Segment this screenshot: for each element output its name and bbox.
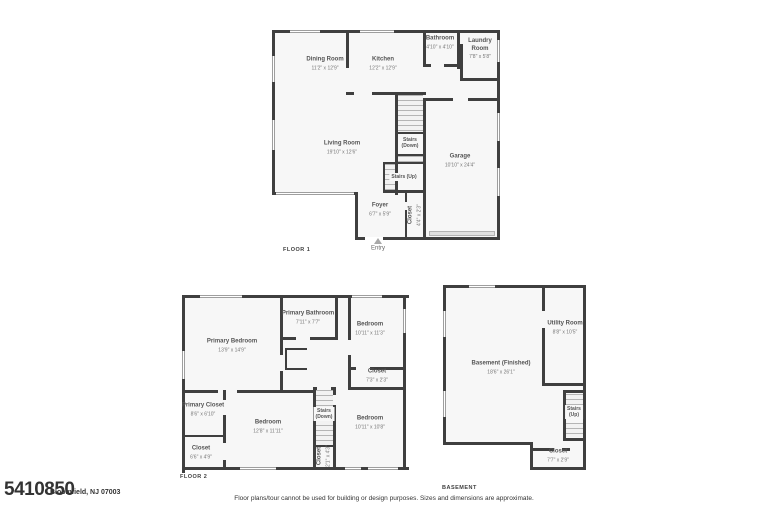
wall	[383, 162, 425, 164]
wall	[355, 192, 358, 240]
stair-treads	[398, 95, 423, 132]
room-name: Living Room	[324, 141, 360, 149]
room-label-dining: Dining Room 11'2" x 12'9"	[306, 57, 343, 72]
room-label-closet: Closet 4'4" x 2'3"	[408, 204, 423, 226]
wall	[348, 387, 406, 390]
window	[290, 30, 320, 33]
room-label-garage: Garage 10'10" x 24'4"	[445, 154, 475, 169]
room-name: Closet	[366, 369, 388, 377]
window	[403, 309, 406, 333]
stairs-up-label: Stairs (Up)	[565, 405, 583, 419]
wall	[223, 460, 226, 470]
room-dims: 6'7" x 5'9"	[369, 211, 391, 217]
room-name: Closet	[547, 449, 569, 457]
room-name: Primary Bedroom	[207, 339, 257, 347]
stairs-line: Stairs (Up)	[391, 174, 416, 180]
wall	[395, 154, 426, 156]
floor2-plan: Primary Bedroom 13'9" x 14'9" Primary Ba…	[180, 293, 408, 475]
wall	[563, 390, 586, 393]
room-name: Kitchen	[369, 57, 396, 65]
window	[272, 56, 275, 82]
wall	[348, 295, 351, 340]
room-dims: 4'4" x 2'3"	[416, 204, 422, 226]
room-dims: 10'11" x 10'8"	[355, 424, 385, 430]
basement-plan: Utility Room 8'8" x 10'5" Basement (Fini…	[441, 283, 591, 477]
window	[200, 295, 242, 298]
wall	[346, 92, 354, 95]
window	[345, 467, 361, 470]
basement-title: BASEMENT	[442, 485, 477, 491]
room-label-bedroom-right: Bedroom 10'11" x 10'8"	[355, 416, 385, 431]
wall	[383, 162, 385, 192]
room-name: Closet	[408, 204, 416, 226]
wall	[423, 98, 453, 101]
room-dims: 12'2" x 12'9"	[369, 65, 396, 71]
wall	[583, 285, 586, 470]
room-label-basement-finished: Basement (Finished) 18'6" x 26'1"	[471, 361, 530, 376]
window	[469, 285, 495, 288]
room-label-closet-basement: Closet 7'7" x 2'9"	[547, 449, 569, 464]
room-dims: 6'6" x 4'9"	[190, 454, 212, 460]
window	[272, 120, 275, 150]
wall	[443, 442, 533, 445]
window	[497, 168, 500, 196]
room-label-kitchen: Kitchen 12'2" x 12'9"	[369, 57, 396, 72]
room-dims: 7'7" x 2'9"	[547, 457, 569, 463]
wall	[443, 285, 446, 445]
floor1-plan: Dining Room 11'2" x 12'9" Kitchen 12'2" …	[270, 28, 500, 246]
room-name: Primary Bathroom	[282, 311, 334, 319]
wall	[460, 78, 500, 81]
window	[276, 192, 354, 195]
entry-arrow-icon	[374, 238, 382, 244]
room-name: Laundry Room	[466, 38, 494, 53]
disclaimer-text: Floor plans/tour cannot be used for buil…	[0, 495, 768, 502]
wall	[468, 98, 500, 101]
wall	[423, 64, 431, 67]
floorplan-page: Dining Room 11'2" x 12'9" Kitchen 12'2" …	[0, 0, 768, 512]
room-label-primary-bedroom: Primary Bedroom 13'9" x 14'9"	[207, 339, 257, 354]
room-dims: 18'6" x 26'1"	[471, 369, 530, 375]
room-name: Bedroom	[355, 416, 385, 424]
wall	[313, 387, 316, 470]
entry-label: Entry	[371, 245, 385, 253]
room-label-bedroom-mid: Bedroom 12'8" x 11'11"	[253, 420, 282, 435]
window	[368, 467, 398, 470]
room-label-foyer: Foyer 6'7" x 5'9"	[369, 203, 391, 218]
room-dims: 19'10" x 12'6"	[324, 149, 360, 155]
room-name: Foyer	[369, 203, 391, 211]
wall	[237, 390, 316, 393]
stair-treads	[566, 423, 583, 437]
room-dims: 10'11" x 11'3"	[355, 330, 384, 336]
wall	[346, 30, 349, 68]
floor2-title: FLOOR 2	[180, 474, 207, 480]
room-dims: 4'10" x 4'10"	[426, 44, 454, 50]
room-dims: 7'3" x 2'3"	[366, 377, 388, 383]
room-dims: 7'8" x 5'8"	[466, 54, 494, 60]
room-dims: 12'8" x 11'11"	[253, 428, 282, 434]
entry-text: Entry	[371, 245, 385, 253]
stairs-down-label: Stairs (Down)	[314, 407, 335, 421]
window	[443, 311, 446, 337]
wall	[423, 98, 426, 240]
wall	[223, 390, 226, 400]
wall	[223, 415, 226, 443]
room-label-living: Living Room 19'10" x 12'6"	[324, 141, 360, 156]
room-label-bathroom: Bathroom 4'10" x 4'10"	[426, 36, 454, 51]
wall	[285, 348, 307, 350]
window	[497, 113, 500, 141]
room-name: Bedroom	[355, 322, 384, 330]
garage-door	[429, 231, 495, 236]
room-name: Closet	[317, 445, 325, 467]
room-name: Basement (Finished)	[471, 361, 530, 369]
wall	[542, 383, 586, 386]
wall	[285, 348, 287, 370]
window	[240, 467, 276, 470]
wall	[310, 337, 338, 340]
room-dims: 2'1" x 4'3"	[325, 445, 331, 467]
room-name: Dining Room	[306, 57, 343, 65]
room-dims: 8'6" x 6'10"	[182, 411, 224, 417]
wall	[542, 328, 545, 386]
room-name: Utility Room	[547, 321, 582, 329]
stairs-line: (Down)	[402, 143, 419, 149]
floor1-title: FLOOR 1	[283, 247, 310, 253]
wall	[285, 368, 307, 370]
room-label-utility: Utility Room 8'8" x 10'5"	[547, 321, 582, 336]
wall	[443, 285, 586, 288]
room-name: Garage	[445, 154, 475, 162]
stairs-line: (Down)	[316, 414, 333, 420]
room-dims: 10'10" x 24'4"	[445, 162, 475, 168]
wall	[333, 387, 336, 395]
room-label-primary-closet: Primary Closet 8'6" x 6'10"	[182, 403, 224, 418]
stairs-down-label: Stairs (Down)	[400, 136, 421, 150]
room-dims: 7'11" x 7'7"	[282, 319, 334, 325]
wall	[335, 295, 338, 337]
room-dims: 8'8" x 10'5"	[547, 329, 582, 335]
window	[497, 40, 500, 62]
wall	[383, 190, 425, 193]
window	[352, 295, 382, 298]
wall	[460, 44, 463, 81]
wall	[182, 435, 223, 437]
room-dims: 13'9" x 14'9"	[207, 347, 257, 353]
wall	[372, 92, 426, 95]
room-name: Bathroom	[426, 36, 454, 44]
wall	[272, 30, 275, 195]
wall	[530, 467, 586, 470]
window	[182, 351, 185, 379]
wall	[182, 390, 218, 393]
room-name: Closet	[190, 446, 212, 454]
room-label-primary-bathroom: Primary Bathroom 7'11" x 7'7"	[282, 311, 334, 326]
room-name: Primary Closet	[182, 403, 224, 411]
room-label-closet-stairs: Closet 2'1" x 4'3"	[317, 445, 332, 467]
room-label-laundry: Laundry Room 7'8" x 5'8"	[466, 38, 494, 60]
wall	[563, 438, 586, 441]
stairs-up-label: Stairs (Up)	[389, 173, 418, 181]
stairs-line: (Up)	[567, 412, 581, 418]
wall	[530, 442, 533, 470]
room-name: Bedroom	[253, 420, 282, 428]
room-dims: 11'2" x 12'9"	[306, 65, 343, 71]
room-label-closet-right: Closet 7'3" x 2'3"	[366, 369, 388, 384]
wall	[182, 295, 185, 473]
wall	[280, 337, 296, 340]
window	[360, 30, 394, 33]
listing-id: 5410850	[4, 479, 74, 501]
window	[443, 391, 446, 417]
wall	[542, 285, 545, 311]
wall	[405, 192, 407, 202]
wall	[395, 132, 426, 134]
room-label-bedroom-top: Bedroom 10'11" x 11'3"	[355, 322, 384, 337]
room-label-closet-left: Closet 6'6" x 4'9"	[190, 446, 212, 461]
